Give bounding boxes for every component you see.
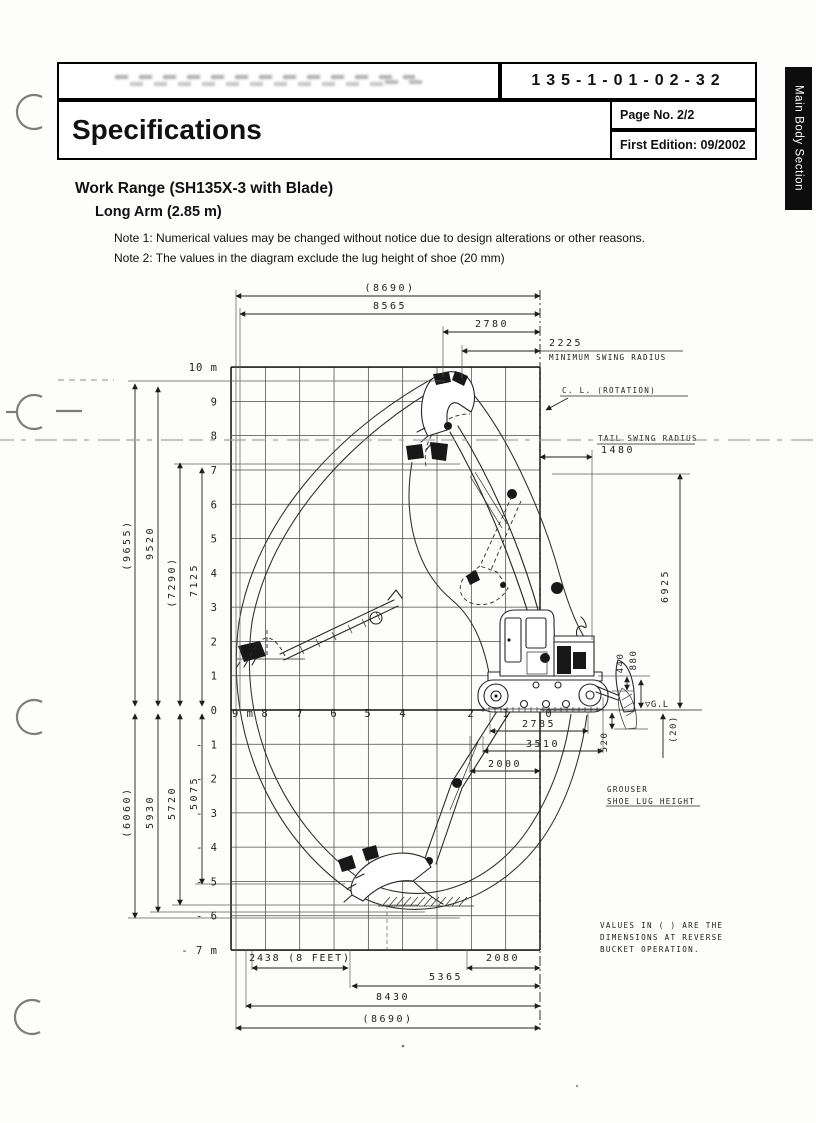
x-axis-label: 5 [364, 708, 371, 720]
x-axis-label: 8 [261, 708, 268, 720]
dim-overall-8565: 8565 [373, 301, 407, 312]
dim-overall-reverse-top: (8690) [364, 283, 415, 294]
x-axis-label: 6 [330, 708, 337, 720]
dim-520: 520 [600, 732, 610, 753]
punch-mark [17, 395, 42, 429]
y-axis-label: 5 [211, 534, 218, 546]
excavator-tracks [478, 680, 608, 712]
y-axis-label: 4 [211, 568, 218, 580]
punch-mark [15, 1000, 40, 1034]
dim-tail-swing-1480: 1480 [601, 445, 635, 456]
x-axis-label: 4 [399, 708, 406, 720]
y-axis-label: - 7 m [181, 945, 218, 957]
work-range-diagram: (8690) 8565 2780 2225 MINIMUM SWING RADI… [0, 0, 816, 1123]
y-axis-label: - 2 [196, 774, 218, 786]
excavator-body [488, 610, 602, 681]
label-minimum-swing-radius: MINIMUM SWING RADIUS [549, 353, 666, 362]
y-axis-label: 3 [211, 602, 218, 614]
dim-2785: 2785 [522, 719, 556, 730]
punch-mark [17, 95, 42, 129]
x-axis-label: 1 [502, 708, 509, 720]
dim-2780: 2780 [475, 319, 509, 330]
dim-min-swing-2225: 2225 [549, 338, 583, 349]
dim-2000: 2000 [488, 759, 522, 770]
dim-5720: 5720 [167, 786, 178, 820]
y-axis-label: 7 [211, 465, 218, 477]
dim-7290: (7290) [167, 556, 178, 607]
dim-9655: (9655) [122, 519, 133, 570]
excavator-boom-down-position [338, 694, 518, 906]
y-axis-label: 1 [211, 671, 218, 683]
x-axis-label: 0 [545, 708, 552, 720]
note-reverse-bucket-1: VALUES IN ( ) ARE THE [600, 921, 723, 930]
label-tail-swing-radius: TAIL SWING RADIUS [598, 434, 698, 443]
dim-7125: 7125 [189, 563, 200, 597]
dim-880: 880 [629, 650, 639, 671]
punch-mark [17, 700, 42, 734]
y-axis-label: - 6 [196, 911, 218, 923]
label-cl-rotation: C. L. (ROTATION) [562, 386, 656, 395]
dim-overall-reverse-bottom: (8690) [362, 1014, 413, 1025]
y-axis-label: - 3 [196, 808, 218, 820]
cab-front-window [505, 618, 521, 662]
dim-2438-8feet: 2438 (8 FEET) [249, 953, 351, 964]
x-axis-label: 7 [296, 708, 303, 720]
y-axis-label: 6 [211, 499, 218, 511]
dim-9520: 9520 [145, 526, 156, 560]
y-axis-label: - 5 [196, 876, 218, 888]
y-axis-label: 9 [211, 396, 218, 408]
y-axis-label: 0 [211, 705, 218, 717]
x-axis-label: 2 [467, 708, 474, 720]
dim-5930: 5930 [145, 795, 156, 829]
label-shoe-lug-height: SHOE LUG HEIGHT [607, 797, 695, 806]
note-reverse-bucket-3: BUCKET OPERATION. [600, 945, 700, 954]
dim-8430: 8430 [376, 992, 410, 1003]
cab-rear-window [526, 618, 546, 648]
y-axis-label: - 4 [196, 842, 218, 854]
dim-6925: 6925 [660, 569, 671, 603]
dim-3510: 3510 [526, 739, 560, 750]
label-grouser: GROUSER [607, 785, 648, 794]
note-reverse-bucket-2: DIMENSIONS AT REVERSE [600, 933, 723, 942]
dim-5365: 5365 [429, 972, 463, 983]
label-ground-level: ▽G.L [645, 700, 669, 710]
x-axis-label: 9 m [232, 708, 254, 720]
y-axis-label: 10 m [189, 362, 218, 374]
manual-page: 135-1-01-02-32 Specifications Page No. 2… [0, 0, 816, 1123]
dim-2080: 2080 [486, 953, 520, 964]
y-axis-label: - 1 [196, 739, 218, 751]
dim-440: 440 [616, 653, 626, 674]
excavator-arm-ground-position [236, 590, 402, 668]
dim-20: (20) [669, 715, 679, 743]
dim-6060: (6060) [122, 786, 133, 837]
y-axis-label: 2 [211, 636, 218, 648]
